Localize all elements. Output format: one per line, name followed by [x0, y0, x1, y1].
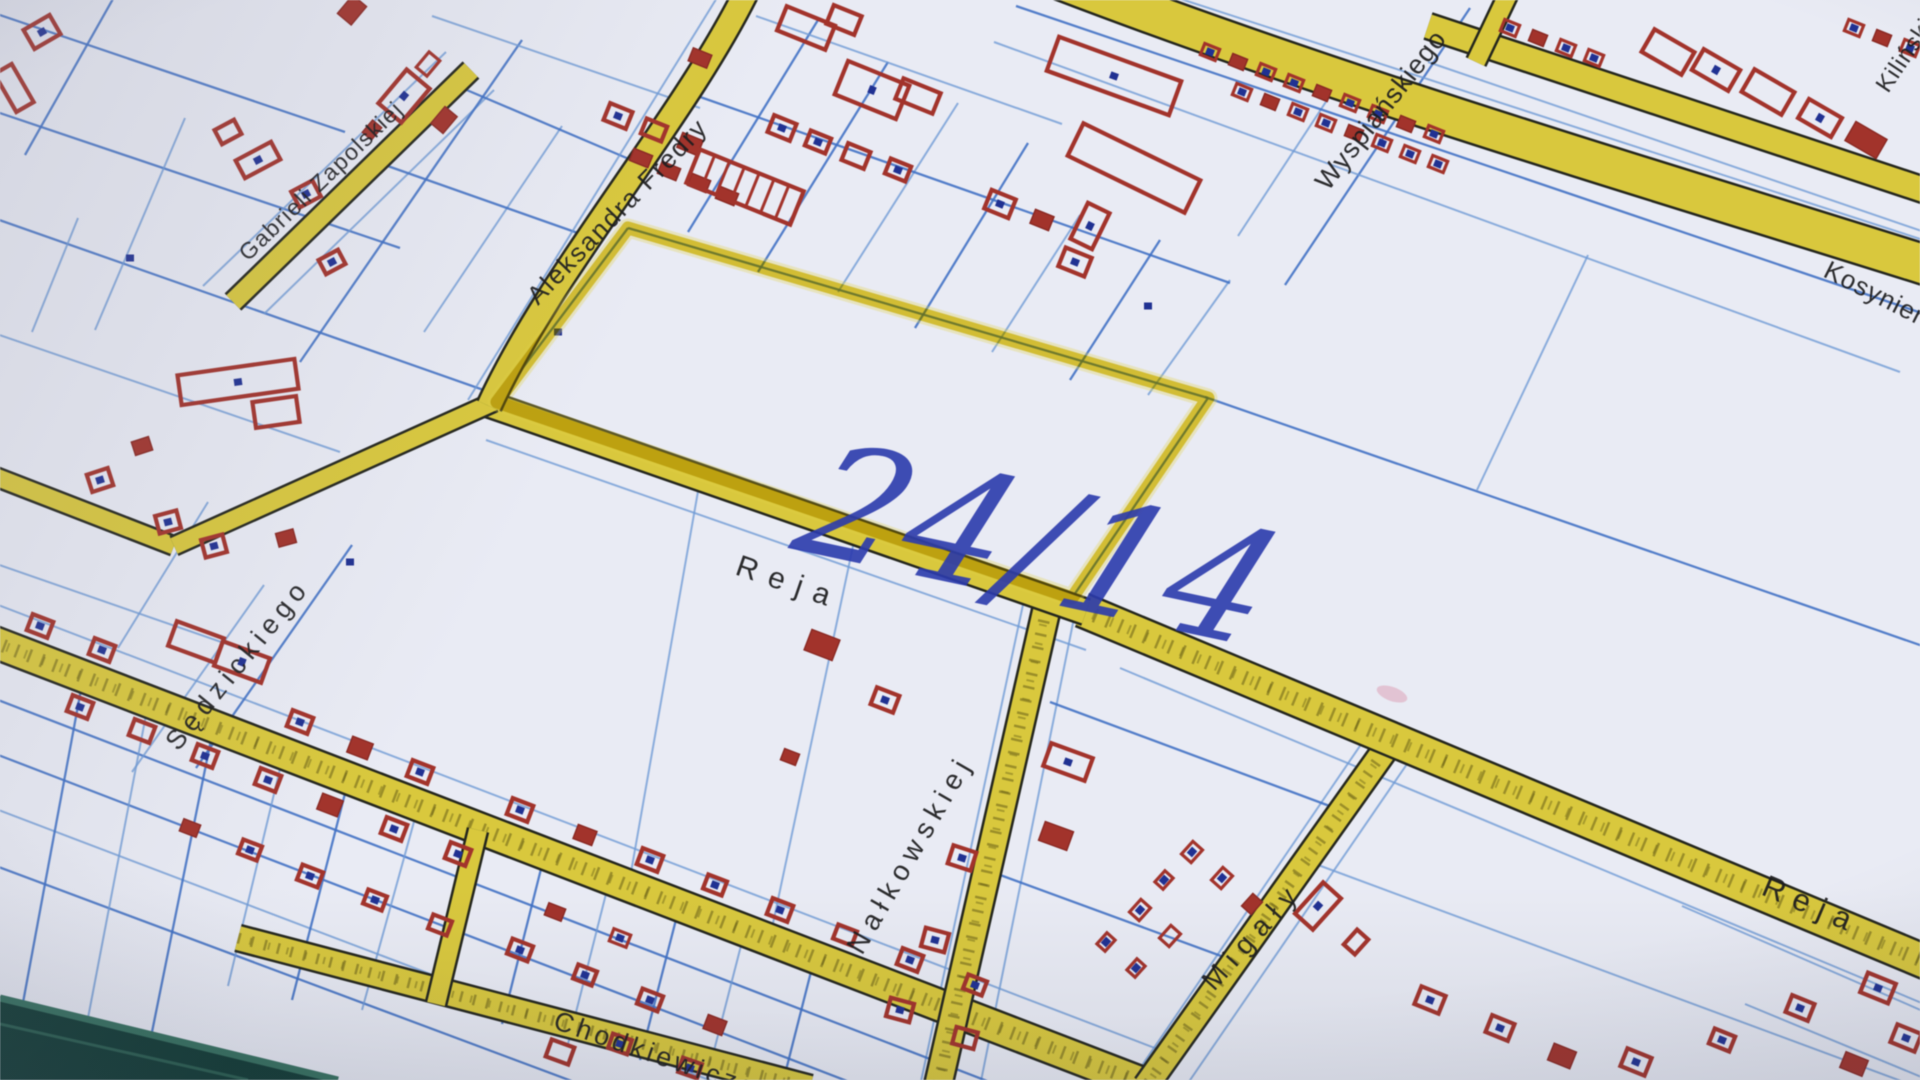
street-label-chodkiewicza: Chodkiewicza — [550, 1005, 763, 1080]
map-svg: Gabrieli Zapolskiej Aleksandra Fredry Wy… — [0, 0, 1920, 1080]
map-corner-dark-edge — [0, 996, 340, 1080]
map-photo: Gabrieli Zapolskiej Aleksandra Fredry Wy… — [0, 0, 1920, 1080]
street-label-gabrieli-zapolskiej: Gabrieli Zapolskiej — [233, 96, 408, 266]
street-label-aleksandra-fredry: Aleksandra Fredry — [521, 112, 714, 310]
street-label-kilinskiego: Kilińskiego — [1871, 0, 1920, 97]
pink-smudge — [1375, 682, 1410, 706]
